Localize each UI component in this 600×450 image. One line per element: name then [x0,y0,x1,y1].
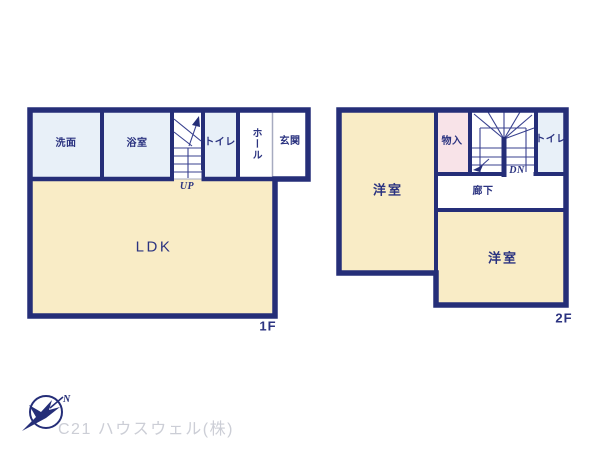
floor-label-2f: 2F [555,312,572,325]
room-label-hall: ホール [250,128,260,161]
room-label-toilet-2f: トイレ [535,135,567,145]
company-name: C21 ハウスウェル(株) [58,415,234,439]
room-label-entrance: 玄関 [280,137,301,147]
floorplan-linework [0,0,600,450]
company-logo [22,396,63,431]
floor-label-1f: 1F [259,320,276,333]
stair-direction-up: UP [180,182,194,192]
compass-north-label: N [63,394,70,405]
room-label-bedroom-left: 洋室 [373,184,403,197]
floorplan-canvas: 洗面 浴室 トイレ ホール 玄関 LDK UP 1F 洋室 物入 トイレ 廊下 … [0,0,600,450]
room-label-toilet-1f: トイレ [204,138,236,148]
room-label-bedroom-right: 洋室 [488,252,518,265]
room-shape-corridor [436,174,566,210]
room-label-corridor: 廊下 [473,187,494,197]
stair-direction-dn: DN [509,166,524,176]
room-label-storage: 物入 [442,137,463,147]
room-label-washroom: 洗面 [56,139,77,149]
room-label-ldk: LDK [136,240,173,255]
room-label-bathroom: 浴室 [127,139,148,149]
